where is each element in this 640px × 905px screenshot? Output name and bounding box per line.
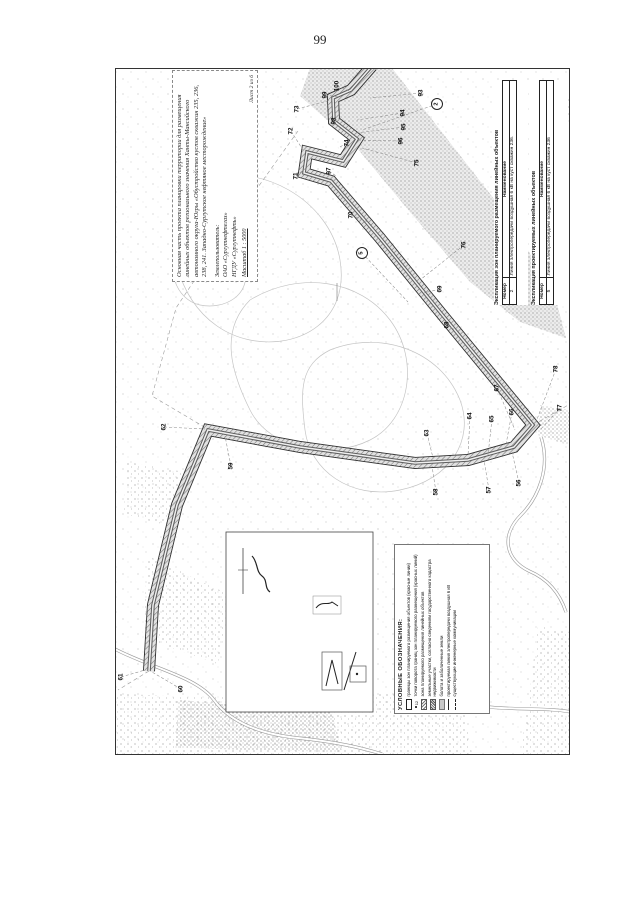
table-row: 5 Линия электропередачи воздушная 6 кВ н… xyxy=(546,81,553,305)
map-point-label: 71 xyxy=(293,172,300,179)
map-point-label: 75 xyxy=(414,159,421,166)
legend-label: земельные участки, согласно сведениям го… xyxy=(428,548,438,697)
map-ref-marker: 2 xyxy=(431,98,443,110)
legend-label: болота и заболоченные земли xyxy=(440,636,445,697)
map-point-label: 77 xyxy=(557,404,564,411)
legend-label: точки поворота границ зон планируемого р… xyxy=(414,554,419,696)
explication-designed-title: Экспликация проектируемых линейных объек… xyxy=(531,80,537,305)
map-point-label: 96 xyxy=(398,137,405,144)
map-point-label: 70 xyxy=(348,211,355,218)
legend-item: существующие инженерные коммуникации xyxy=(453,548,458,710)
map-point-label: 60 xyxy=(178,685,185,692)
landuser-org: ОАО «Сургутнефтегаз» xyxy=(222,75,230,277)
map-point-label: 68 xyxy=(444,321,451,328)
row-name: Линия электропередачи воздушная 6 кВ на … xyxy=(546,81,553,278)
map-point-label: 74 xyxy=(344,139,351,146)
map-point-label: 72 xyxy=(288,127,295,134)
map-point-label: 99 xyxy=(322,91,329,98)
map-point-label: 73 xyxy=(294,105,301,112)
map-point-label: 93 xyxy=(418,89,425,96)
legend-item: зона планируемого размещения линейных об… xyxy=(421,548,427,710)
gray-symbol xyxy=(439,699,445,710)
map-point-label: 78 xyxy=(553,365,560,372)
document-page: 99 xyxy=(0,0,640,905)
map-point-label: 95 xyxy=(401,123,408,130)
dashed-line-symbol xyxy=(455,699,456,710)
legend-label: границы зон планируемого размещения объе… xyxy=(407,563,412,696)
map-point-label: 63 xyxy=(424,429,431,436)
map-point-label: 58 xyxy=(433,488,440,495)
legend-item: границы зон планируемого размещения объе… xyxy=(406,548,412,710)
solid-line-symbol xyxy=(448,699,449,710)
title-block: Основная часть проекта планировки террит… xyxy=(172,70,258,282)
legend-title: УСЛОВНЫЕ ОБОЗНАЧЕНИЯ: xyxy=(398,548,404,710)
dense-hatch-symbol xyxy=(430,699,436,710)
map-point-label: 76 xyxy=(461,241,468,248)
map-point-label: 94 xyxy=(400,109,407,116)
map-point-label: 66 xyxy=(509,408,516,415)
table-row: 2 Линия электропередачи воздушная 6 кВ н… xyxy=(509,81,516,305)
map-point-label: 62 xyxy=(161,423,168,430)
map-point-label: 100 xyxy=(334,81,341,92)
hatch-symbol xyxy=(421,699,427,710)
explication-table-zones: Экспликация зон планируемого размещения … xyxy=(494,80,528,305)
map-scale: Масштаб 1 : 5000 xyxy=(241,75,248,277)
map-point-label: 59 xyxy=(228,462,235,469)
map-point-label: 64 xyxy=(467,412,474,419)
col-header-number: Номер xyxy=(539,278,546,305)
landuser-dept: НГДУ «Сургутнефть» xyxy=(231,75,239,277)
col-header-name: Наименование xyxy=(502,81,509,278)
map-point-label: 56 xyxy=(516,479,523,486)
col-header-number: Номер xyxy=(502,278,509,305)
map-point-label: 98 xyxy=(331,117,338,124)
legend-label: проектируемая линия электропередачи возд… xyxy=(447,585,452,697)
legend: УСЛОВНЫЕ ОБОЗНАЧЕНИЯ: границы зон планир… xyxy=(394,544,490,714)
row-number: 2 xyxy=(509,278,516,305)
legend-label: существующие инженерные коммуникации xyxy=(453,610,458,696)
explication-table-designed: Экспликация проектируемых линейных объек… xyxy=(531,80,568,305)
map-point-label: 69 xyxy=(437,285,444,292)
row-name: Линия электропередачи воздушная 6 кВ на … xyxy=(509,81,516,278)
map-point-label: 67 xyxy=(494,384,501,391)
point-number-symbol: 12 xyxy=(413,699,419,710)
map-point-label: 97 xyxy=(326,167,333,174)
map-ref-marker: 5 xyxy=(356,247,368,259)
legend-item: болота и заболоченные земли xyxy=(439,548,445,710)
legend-items: границы зон планируемого размещения объе… xyxy=(406,548,458,710)
rect-outline-symbol xyxy=(406,699,412,710)
legend-item: земельные участки, согласно сведениям го… xyxy=(428,548,438,710)
legend-item: 12точки поворота границ зон планируемого… xyxy=(413,548,419,710)
map-point-label: 65 xyxy=(489,415,496,422)
sheet-number: Лист 2 из 6 xyxy=(249,75,255,103)
project-title: Основная часть проекта планировки террит… xyxy=(176,75,210,277)
legend-label: зона планируемого размещения линейных об… xyxy=(421,592,426,697)
map-point-label: 57 xyxy=(486,486,493,493)
map-point-label: 61 xyxy=(118,673,125,680)
legend-item: проектируемая линия электропередачи возд… xyxy=(447,548,452,710)
col-header-name: Наименование xyxy=(539,81,546,278)
explication-zones-title: Экспликация зон планируемого размещения … xyxy=(494,80,500,305)
row-number: 5 xyxy=(546,278,553,305)
landuser-label: Землепользователь: xyxy=(214,75,222,277)
